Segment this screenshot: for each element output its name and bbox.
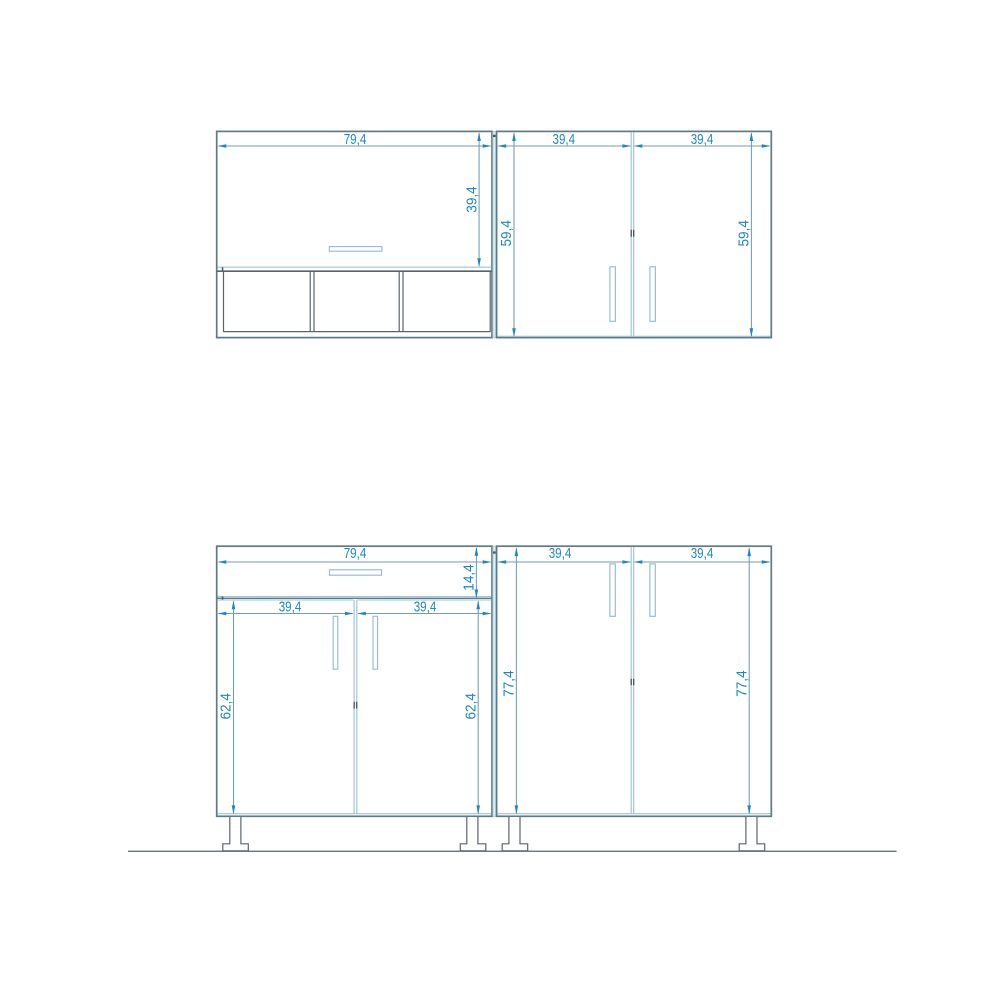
- svg-text:59,4: 59,4: [736, 220, 753, 247]
- svg-text:62,4: 62,4: [462, 693, 479, 720]
- svg-text:77,4: 77,4: [501, 670, 518, 697]
- svg-text:79,4: 79,4: [344, 131, 367, 148]
- svg-text:62,4: 62,4: [218, 693, 235, 720]
- svg-text:14,4: 14,4: [461, 564, 478, 591]
- svg-text:77,4: 77,4: [733, 670, 750, 697]
- svg-text:39,4: 39,4: [691, 131, 714, 148]
- svg-text:39,4: 39,4: [553, 131, 576, 148]
- svg-text:39,4: 39,4: [691, 545, 714, 562]
- svg-text:39,4: 39,4: [414, 599, 437, 616]
- svg-text:59,4: 59,4: [498, 220, 515, 247]
- svg-text:39,4: 39,4: [549, 545, 572, 562]
- svg-text:79,4: 79,4: [344, 545, 367, 562]
- svg-text:39,4: 39,4: [279, 599, 302, 616]
- svg-text:39,4: 39,4: [463, 186, 480, 213]
